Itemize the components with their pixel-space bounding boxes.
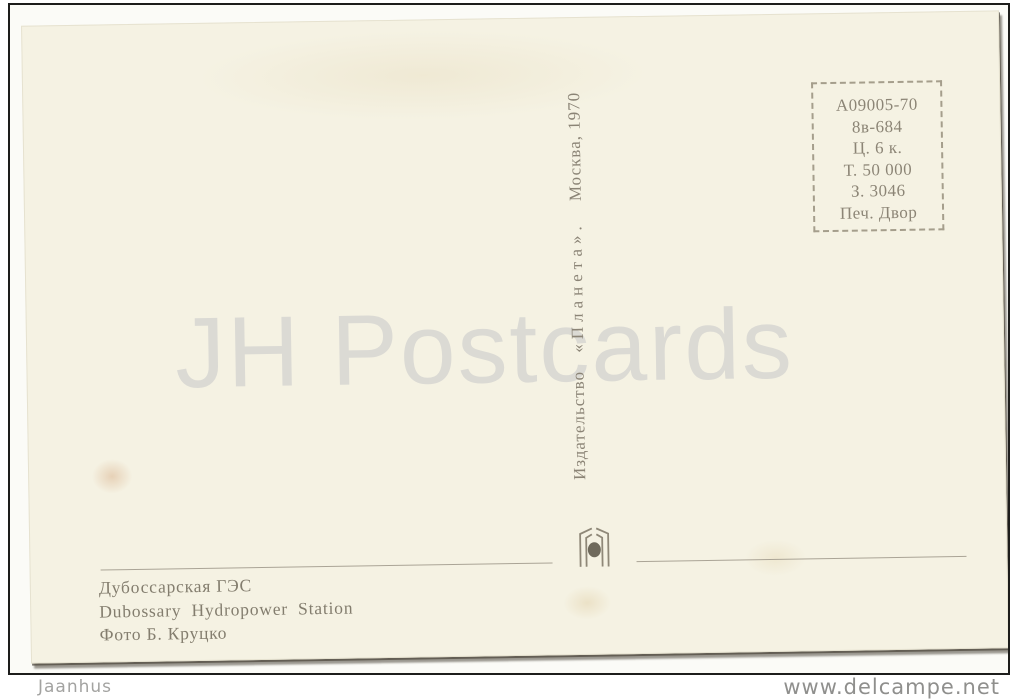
divider-line-right <box>637 556 967 562</box>
print-info-printer: Печ. Двор <box>815 201 942 224</box>
publisher-imprint-name: «Планета». <box>566 221 587 353</box>
caption-block: Дубоссарская ГЭС Dubossary Hydropower St… <box>99 573 354 647</box>
divider-line-left <box>101 562 553 570</box>
print-info-series: 8в-684 <box>814 115 941 138</box>
planeta-publisher-logo-icon <box>576 525 613 568</box>
print-info-catalog-number: А09005-70 <box>813 93 940 116</box>
print-info-box: А09005-70 8в-684 Ц. 6 к. Т. 50 000 З. 30… <box>811 80 944 232</box>
print-info-order-number: З. 3046 <box>815 179 942 202</box>
postcard-back: JH Postcards А09005-70 8в-684 Ц. 6 к. Т.… <box>21 10 1009 663</box>
print-info-print-run: Т. 50 000 <box>814 158 941 181</box>
print-info-price: Ц. 6 к. <box>814 136 941 159</box>
publisher-imprint-prefix: Издательство <box>569 371 590 480</box>
scan-frame: JH Postcards А09005-70 8в-684 Ц. 6 к. Т.… <box>8 3 1010 675</box>
marketplace-watermark: www.delcampe.net <box>783 675 1000 699</box>
dealer-watermark: JH Postcards <box>174 287 794 412</box>
photo-credit: Фото Б. Круцко <box>99 620 353 647</box>
publisher-imprint-city-year: Москва, 1970 <box>564 92 585 202</box>
caption-title-english: Dubossary Hydropower Station <box>99 596 353 623</box>
seller-name: Jaanhus <box>38 677 112 697</box>
publisher-imprint: Издательство «Планета». Москва, 1970 <box>564 92 590 480</box>
